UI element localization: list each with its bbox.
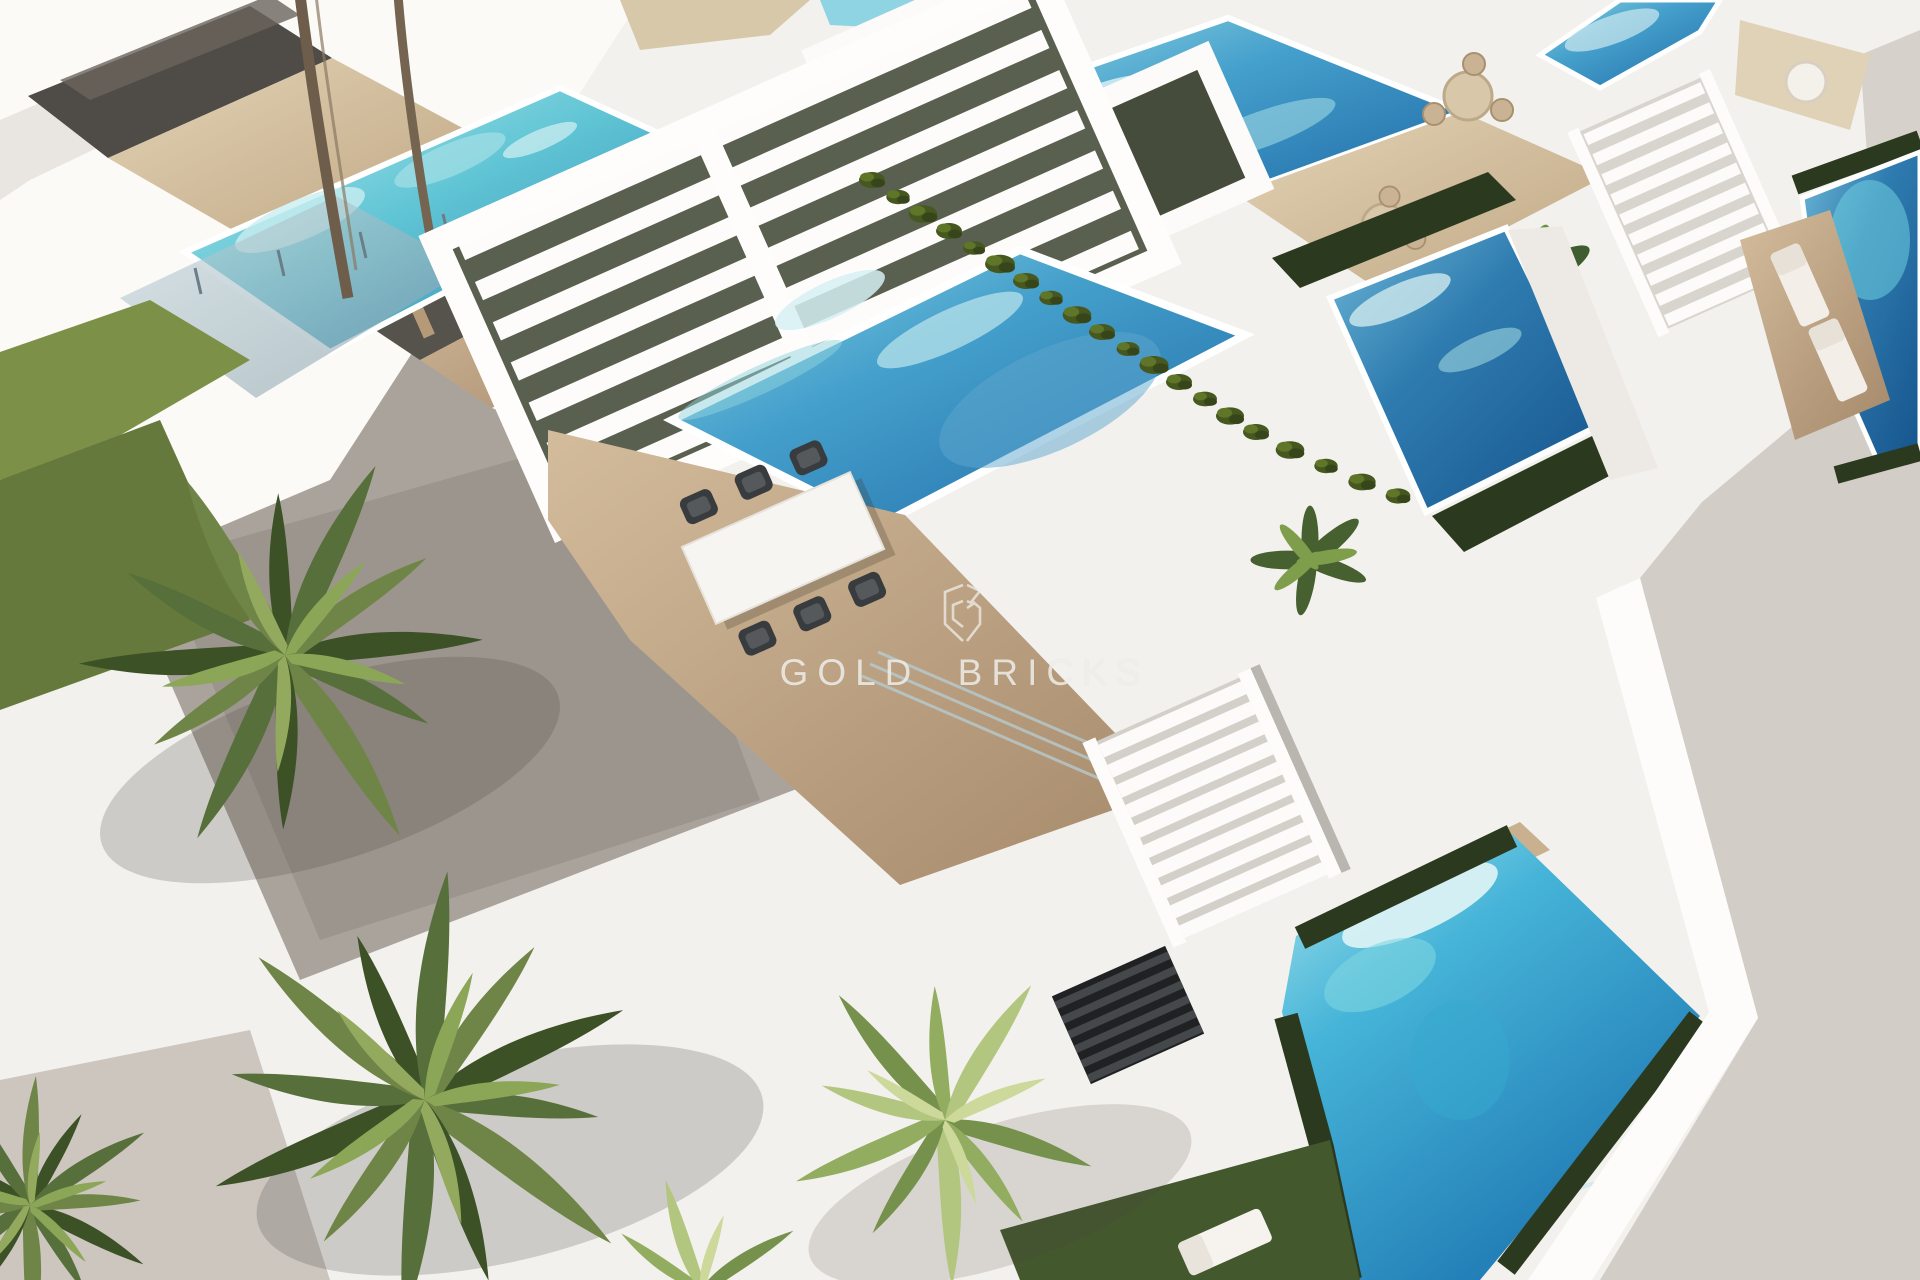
villa-render-scene [0,0,1920,1280]
round-set-far-right [1786,62,1826,102]
render-canvas: GOLD BRICKS [0,0,1920,1280]
